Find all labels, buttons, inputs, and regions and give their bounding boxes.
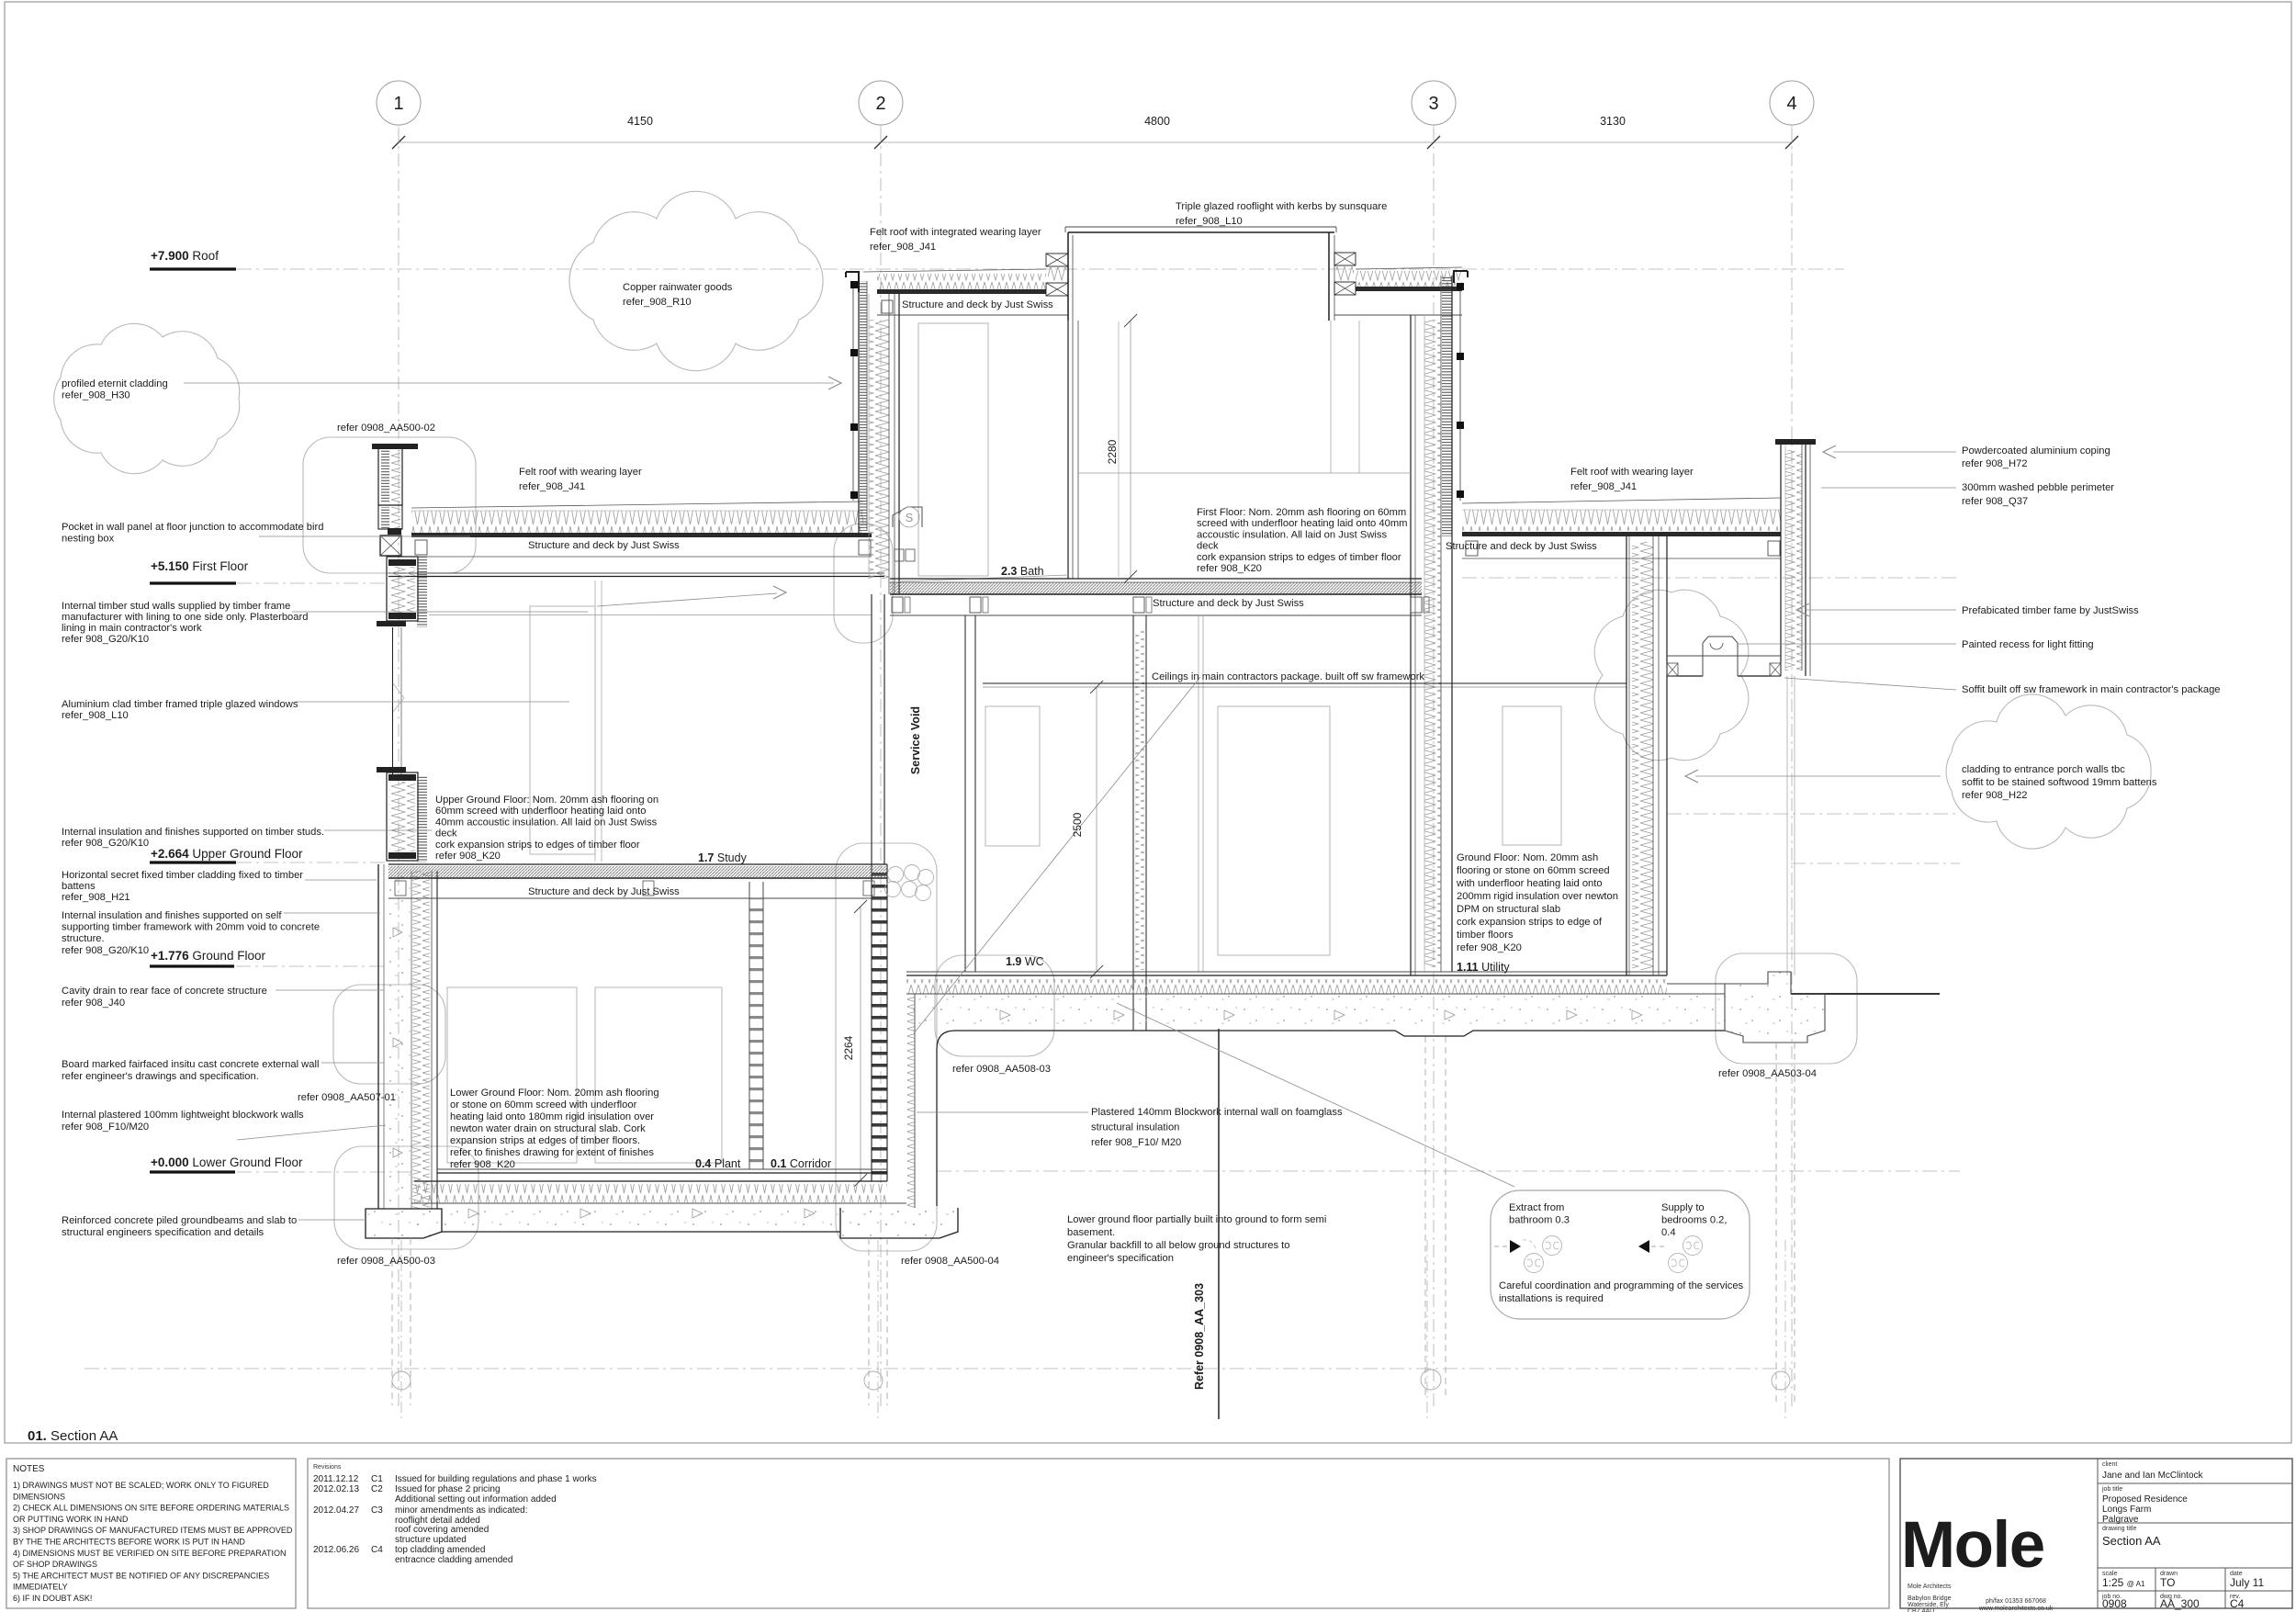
svg-text:IMMEDIATELY: IMMEDIATELY: [13, 1583, 68, 1592]
svg-text:Jane and Ian McClintock: Jane and Ian McClintock: [2102, 1471, 2204, 1481]
svg-text:Horizontal secret fixed timber: Horizontal secret fixed timber cladding …: [62, 870, 303, 881]
svg-text:TO: TO: [2160, 1576, 2175, 1589]
svg-text:structural engineers specifica: structural engineers specification and d…: [62, 1227, 264, 1238]
svg-text:2.3 Bath: 2.3 Bath: [1001, 565, 1044, 578]
svg-text:Aluminium clad timber framed t: Aluminium clad timber framed triple glaz…: [62, 699, 298, 710]
svg-text:basement.: basement.: [1067, 1227, 1115, 1238]
svg-text:1.11 Utility: 1.11 Utility: [1457, 961, 1510, 974]
svg-text:60mm screed with underfloor he: 60mm screed with underfloor heating laid…: [435, 806, 646, 817]
svg-text:cork expansion strips to edges: cork expansion strips to edges of timber…: [435, 840, 640, 851]
svg-text:Ceilings in main contractors p: Ceilings in main contractors package. bu…: [1152, 671, 1424, 682]
svg-text:Internal plastered 100mm light: Internal plastered 100mm lightweight blo…: [62, 1110, 304, 1121]
svg-text:1) DRAWINGS MUST NOT BE SCALED: 1) DRAWINGS MUST NOT BE SCALED; WORK ONL…: [13, 1481, 269, 1490]
svg-text:3: 3: [1428, 94, 1438, 114]
svg-text:OF SHOP DRAWINGS: OF SHOP DRAWINGS: [13, 1560, 97, 1569]
svg-text:Felt roof with wearing layer: Felt roof with wearing layer: [519, 467, 642, 478]
svg-text:accoustic insulation. All lai: accoustic insulation. All laid on Just S…: [1197, 529, 1387, 540]
svg-text:2011.12.12: 2011.12.12: [313, 1474, 359, 1484]
svg-text:C1: C1: [371, 1474, 383, 1484]
svg-text:BY THE THE ARCHITECTS BEFORE W: BY THE THE ARCHITECTS BEFORE WORK IS PUT…: [13, 1538, 245, 1547]
svg-text:client: client: [2102, 1461, 2117, 1468]
svg-text:refer 908_G20/K10: refer 908_G20/K10: [62, 838, 149, 849]
svg-text:timber floors: timber floors: [1457, 930, 1514, 941]
svg-text:4) DIMENSIONS MUST BE VERIFIED: 4) DIMENSIONS MUST BE VERIFIED ON SITE B…: [13, 1549, 287, 1558]
svg-text:+5.150 First Floor: +5.150 First Floor: [151, 559, 249, 573]
svg-text:refer 908_J40: refer 908_J40: [62, 998, 125, 1009]
svg-text:Supply to: Supply to: [1661, 1202, 1705, 1213]
svg-text:2012.04.27: 2012.04.27: [313, 1505, 359, 1516]
svg-text:S: S: [906, 511, 914, 524]
svg-text:Pocket in wall panel at floor: Pocket in wall panel at floor junction t…: [62, 522, 323, 533]
svg-text:cladding to entrance porch wal: cladding to entrance porch walls tbc: [1962, 764, 2125, 775]
svg-text:installations is required: installations is required: [1499, 1293, 1604, 1304]
svg-text:OR PUTTING WORK IN HAND: OR PUTTING WORK IN HAND: [13, 1515, 129, 1524]
svg-text:Babylon Bridge: Babylon Bridge: [1908, 1595, 1952, 1602]
svg-text:Issued for phase 2 pricing: Issued for phase 2 pricing: [395, 1484, 501, 1494]
svg-text:heating laid onto 180mm rigid: heating laid onto 180mm rigid insulation…: [450, 1111, 654, 1122]
svg-text:CB7 4AU: CB7 4AU: [1908, 1608, 1934, 1612]
svg-text:Felt roof with integrated wear: Felt roof with integrated wearing layer: [870, 227, 1041, 238]
svg-text:2012.02.13: 2012.02.13: [313, 1484, 359, 1494]
svg-text:screed with underfloor heating: screed with underfloor heating laid onto…: [1197, 518, 1407, 529]
svg-text:1.7 Study: 1.7 Study: [698, 851, 748, 864]
svg-text:soffit to be stained softwood: soffit to be stained softwood 19mm batte…: [1962, 777, 2157, 788]
svg-text:Plastered 140mm Blockwork inte: Plastered 140mm Blockwork internal wall …: [1091, 1107, 1343, 1118]
svg-text:Extract from: Extract from: [1509, 1202, 1564, 1213]
svg-text:Mole: Mole: [1901, 1509, 2044, 1582]
svg-text:refer 0908_AA508-03: refer 0908_AA508-03: [952, 1064, 1051, 1075]
svg-text:refer 908_K20: refer 908_K20: [1197, 563, 1262, 574]
svg-text:C4: C4: [2230, 1597, 2245, 1610]
svg-text:Internal timber stud walls sup: Internal timber stud walls supplied by t…: [62, 601, 290, 612]
svg-text:5) THE ARCHITECT MUST BE NOTIF: 5) THE ARCHITECT MUST BE NOTIFIED OF ANY…: [13, 1571, 269, 1580]
svg-text:Careful coordination and progr: Careful coordination and programming of …: [1499, 1280, 1744, 1291]
svg-text:refer 0908_AA500-04: refer 0908_AA500-04: [901, 1256, 999, 1267]
svg-text:Section AA: Section AA: [2102, 1534, 2161, 1548]
svg-text:refer 908_F10/M20: refer 908_F10/M20: [62, 1122, 149, 1133]
svg-text:drawing title: drawing title: [2102, 1526, 2136, 1532]
svg-text:Refer 0908_AA_303: Refer 0908_AA_303: [1193, 1283, 1206, 1390]
svg-text:refer 908_H72: refer 908_H72: [1962, 458, 2028, 469]
svg-text:battens: battens: [62, 881, 96, 892]
svg-text:DIMENSIONS: DIMENSIONS: [13, 1492, 65, 1501]
svg-text:Copper rainwater goods: Copper rainwater goods: [623, 282, 733, 293]
svg-text:+7.900 Roof: +7.900 Roof: [151, 249, 219, 263]
svg-text:3130: 3130: [1600, 115, 1626, 128]
svg-text:Revisions: Revisions: [313, 1464, 342, 1471]
svg-text:refer 908_K20: refer 908_K20: [1457, 942, 1522, 953]
svg-text:0.1 Corridor: 0.1 Corridor: [771, 1157, 831, 1170]
svg-text:Longs Farm: Longs Farm: [2102, 1505, 2151, 1515]
svg-text:refer_908_J41: refer_908_J41: [519, 481, 585, 492]
svg-text:refer 908_Q37: refer 908_Q37: [1962, 496, 2028, 507]
svg-text:refer_908_J41: refer_908_J41: [870, 242, 936, 253]
svg-text:refer to finishes drawing for: refer to finishes drawing for extent of …: [450, 1147, 654, 1158]
svg-text:Felt roof with wearing layer: Felt roof with wearing layer: [1570, 467, 1694, 478]
svg-text:refer 0908_AA503-04: refer 0908_AA503-04: [1718, 1068, 1817, 1079]
svg-text:0.4 Plant: 0.4 Plant: [695, 1157, 741, 1170]
svg-text:200mm rigid insulation over ne: 200mm rigid insulation over newton: [1457, 891, 1618, 902]
svg-text:2264: 2264: [842, 1035, 855, 1060]
svg-text:refer 0908_AA500-02: refer 0908_AA500-02: [337, 423, 435, 434]
svg-text:Proposed Residence: Proposed Residence: [2102, 1494, 2188, 1505]
svg-text:Soffit built off sw framework: Soffit built off sw framework in main co…: [1962, 684, 2221, 695]
svg-text:job title: job title: [2101, 1486, 2122, 1493]
svg-text:Cavity drain to rear face of c: Cavity drain to rear face of concrete st…: [62, 986, 267, 997]
svg-text:refer_908_H30: refer_908_H30: [62, 390, 130, 401]
svg-text:refer_908_L10: refer_908_L10: [62, 710, 129, 721]
svg-text:AA_300: AA_300: [2160, 1597, 2200, 1610]
svg-text:entracnce cladding amended: entracnce cladding amended: [395, 1555, 512, 1565]
svg-text:4: 4: [1786, 94, 1796, 114]
svg-text:refer 908_G20/K10: refer 908_G20/K10: [62, 945, 149, 956]
svg-text:+0.000 Lower Ground Floor: +0.000 Lower Ground Floor: [151, 1155, 303, 1169]
svg-text:Mole Architects: Mole Architects: [1908, 1584, 1952, 1590]
svg-text:refer_908_R10: refer_908_R10: [623, 297, 692, 308]
svg-text:Service Void: Service Void: [909, 706, 922, 774]
svg-text:Structure and deck by Just Swi: Structure and deck by Just Swiss: [902, 299, 1053, 310]
svg-text:refer 908_H22: refer 908_H22: [1962, 790, 2028, 801]
svg-text:refer_908_J41: refer_908_J41: [1570, 481, 1637, 492]
svg-text:roof covering amended: roof covering amended: [395, 1525, 489, 1535]
svg-text:top cladding amended: top cladding amended: [395, 1545, 485, 1555]
svg-text:refer engineer's drawings and: refer engineer's drawings and specificat…: [62, 1071, 259, 1082]
svg-text:or stone on 60mm screed with u: or stone on 60mm screed with underfloor: [450, 1099, 637, 1110]
svg-text:Board marked fairfaced insitu: Board marked fairfaced insitu cast concr…: [62, 1059, 319, 1070]
svg-text:Granular backfill to all below: Granular backfill to all below ground st…: [1067, 1240, 1290, 1251]
svg-text:3) SHOP DRAWINGS OF MANUFACTUR: 3) SHOP DRAWINGS OF MANUFACTURED ITEMS M…: [13, 1526, 293, 1535]
svg-text:1: 1: [393, 94, 403, 114]
svg-text:2: 2: [875, 94, 885, 114]
svg-text:deck: deck: [1197, 541, 1219, 552]
svg-text:structural insulation: structural insulation: [1091, 1122, 1179, 1133]
svg-text:300mm washed pebble perimeter: 300mm washed pebble perimeter: [1962, 482, 2114, 493]
svg-text:C4: C4: [371, 1545, 383, 1555]
svg-text:+2.664 Upper Ground Floor: +2.664 Upper Ground Floor: [151, 847, 303, 861]
svg-text:4800: 4800: [1144, 115, 1170, 128]
svg-text:with underfloor heating laid o: with underfloor heating laid onto: [1456, 878, 1603, 889]
svg-text:Ground Floor: Nom. 20mm ash: Ground Floor: Nom. 20mm ash: [1457, 852, 1598, 863]
svg-text:Internal insulation and finish: Internal insulation and finishes support…: [62, 910, 282, 921]
svg-text:2012.06.26: 2012.06.26: [313, 1545, 359, 1555]
svg-text:2500: 2500: [1071, 812, 1084, 837]
svg-text:ph/fax 01353 667068: ph/fax 01353 667068: [1986, 1598, 2046, 1605]
svg-text:01. Section AA: 01. Section AA: [28, 1428, 118, 1444]
svg-text:Painted recess for light fitti: Painted recess for light fitting: [1962, 639, 2094, 650]
svg-text:engineer's specification: engineer's specification: [1067, 1253, 1174, 1264]
svg-text:Structure and deck by Just Swi: Structure and deck by Just Swiss: [528, 886, 680, 897]
svg-text:2) CHECK ALL DIMENSIONS ON SIT: 2) CHECK ALL DIMENSIONS ON SITE BEFORE O…: [13, 1504, 289, 1513]
svg-text:First Floor: Nom. 20mm ash flo: First Floor: Nom. 20mm ash flooring on 6…: [1197, 507, 1406, 518]
svg-text:40mm accoustic insulation. Al: 40mm accoustic insulation. All laid on J…: [435, 817, 658, 828]
svg-text:refer_908_H21: refer_908_H21: [62, 892, 130, 903]
svg-text:manufacturer with lining to on: manufacturer with lining to one side onl…: [62, 612, 308, 623]
svg-text:refer 908_F10/ M20: refer 908_F10/ M20: [1091, 1137, 1181, 1148]
svg-text:1.9 WC: 1.9 WC: [1006, 955, 1044, 968]
svg-text:structure.: structure.: [62, 933, 105, 944]
svg-text:C3: C3: [371, 1505, 383, 1516]
svg-text:Prefabicated timber fame by Ju: Prefabicated timber fame by JustSwiss: [1962, 605, 2139, 616]
svg-text:refer 0908_AA507-01: refer 0908_AA507-01: [298, 1092, 396, 1103]
svg-text:refer 908_K20: refer 908_K20: [435, 851, 501, 862]
svg-text:refer 908_G20/K10: refer 908_G20/K10: [62, 634, 149, 645]
svg-text:refer 908_K20: refer 908_K20: [450, 1159, 515, 1170]
svg-text:Waterside, Ely: Waterside, Ely: [1908, 1602, 1949, 1608]
svg-text:Structure and deck by Just Swi: Structure and deck by Just Swiss: [1446, 541, 1597, 552]
svg-text:newton water drain on structur: newton water drain on structural slab. C…: [450, 1123, 646, 1134]
svg-text:nesting box: nesting box: [62, 534, 115, 545]
svg-text:www.molearchitects.co.uk: www.molearchitects.co.uk: [1978, 1606, 2054, 1612]
svg-text:Issued for building regulation: Issued for building regulations and phas…: [395, 1474, 597, 1484]
svg-text:structure updated: structure updated: [395, 1535, 467, 1545]
svg-text:refer_908_L10: refer_908_L10: [1176, 216, 1243, 227]
svg-text:refer 0908_AA500-03: refer 0908_AA500-03: [337, 1256, 435, 1267]
svg-text:Reinforced concrete piled grou: Reinforced concrete piled groundbeams an…: [62, 1215, 297, 1226]
svg-text:Triple glazed rooflight with k: Triple glazed rooflight with kerbs by su…: [1176, 201, 1387, 212]
svg-text:bathroom 0.3: bathroom 0.3: [1509, 1215, 1570, 1226]
svg-text:Internal insulation and finish: Internal insulation and finishes support…: [62, 827, 324, 838]
svg-text:Lower ground floor partially b: Lower ground floor partially built into …: [1067, 1214, 1326, 1225]
svg-text:Palgrave: Palgrave: [2102, 1515, 2139, 1525]
svg-text:bedrooms 0.2,: bedrooms 0.2,: [1661, 1215, 1728, 1226]
svg-text:supporting timber framework wi: supporting timber framework with 20mm vo…: [62, 922, 320, 933]
svg-text:flooring or stone on 60mm scre: flooring or stone on 60mm screed: [1457, 865, 1610, 876]
svg-text:4150: 4150: [627, 115, 653, 128]
svg-text:deck: deck: [435, 829, 457, 840]
svg-text:cork expansion strips to edge: cork expansion strips to edge of: [1457, 917, 1603, 928]
svg-text:Additional setting out informa: Additional setting out information added: [395, 1494, 557, 1505]
svg-text:profiled eternit cladding: profiled eternit cladding: [62, 378, 168, 389]
svg-text:Structure and deck by Just Swi: Structure and deck by Just Swiss: [1153, 598, 1304, 609]
svg-text:lining in main contractor's wo: lining in main contractor's work: [62, 623, 202, 634]
svg-text:Lower Ground Floor: Nom. 20mm: Lower Ground Floor: Nom. 20mm ash floori…: [450, 1088, 659, 1099]
svg-text:2280: 2280: [1106, 439, 1119, 464]
svg-text:Structure and deck by Just Swi: Structure and deck by Just Swiss: [528, 540, 680, 551]
svg-text:0908: 0908: [2102, 1597, 2127, 1610]
svg-text:July 11: July 11: [2230, 1576, 2264, 1589]
svg-text:+1.776 Ground Floor: +1.776 Ground Floor: [151, 949, 265, 963]
svg-text:0.4: 0.4: [1661, 1227, 1676, 1238]
svg-text:cork expansion strips to edges: cork expansion strips to edges of timber…: [1197, 552, 1401, 563]
svg-text:DPM on structural slab: DPM on structural slab: [1457, 904, 1560, 915]
svg-text:expansion strips at edges of t: expansion strips at edges of timber floo…: [450, 1135, 640, 1146]
svg-text:minor amendments as indicated:: minor amendments as indicated:: [395, 1505, 528, 1516]
svg-text:C2: C2: [371, 1484, 383, 1494]
svg-text:Upper Ground Floor: Nom. 20mm: Upper Ground Floor: Nom. 20mm ash floori…: [435, 795, 658, 806]
svg-text:NOTES: NOTES: [13, 1464, 45, 1474]
svg-text:Powdercoated aluminium coping: Powdercoated aluminium coping: [1962, 445, 2110, 457]
svg-text:6) IF IN DOUBT ASK!: 6) IF IN DOUBT ASK!: [13, 1594, 92, 1603]
